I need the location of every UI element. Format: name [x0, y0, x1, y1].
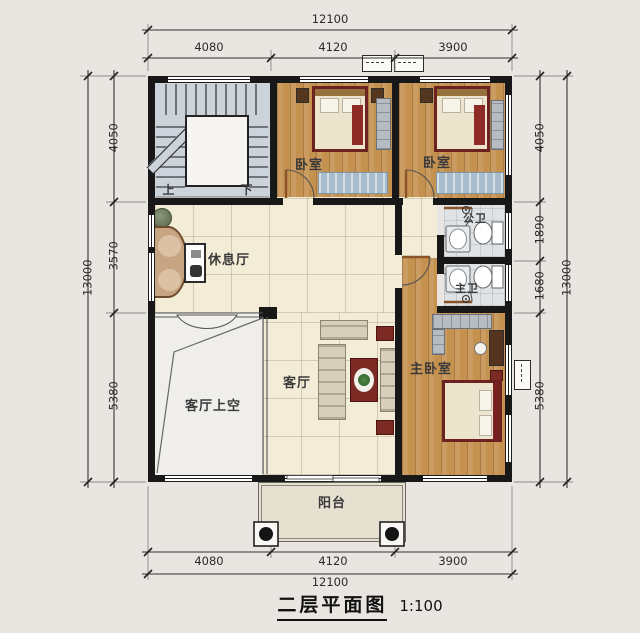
bed [442, 380, 502, 442]
headboard [315, 89, 365, 96]
wall-masterbath-bottom [437, 306, 505, 313]
dim-top-seg-1: 4080 [179, 42, 239, 54]
dim-top-total: 12100 [300, 14, 360, 26]
stair-label-down: 下 [237, 184, 257, 197]
column-void-corner [259, 307, 277, 319]
window [165, 475, 252, 482]
plant [152, 208, 172, 228]
dim-right-total: 13000 [561, 248, 573, 308]
dim-right-seg-3: 1680 [534, 256, 546, 316]
dim-bottom-seg-1: 4080 [179, 556, 239, 568]
dim-left-seg-2: 3570 [108, 226, 120, 286]
room-label-balcony: 阳台 [302, 497, 362, 511]
wall-hall-master-b [395, 288, 402, 475]
room-label-bedroom-left: 卧室 [279, 159, 339, 173]
bed [434, 86, 490, 152]
room-label-living-room: 客厅 [267, 377, 327, 391]
dim-right-seg-1: 4050 [534, 108, 546, 168]
rug [436, 172, 504, 194]
wall-stair-bedroom [270, 83, 277, 198]
ac-unit-icon [394, 55, 424, 72]
dim-left-total: 13000 [82, 248, 94, 308]
master-vestibule-floor [402, 258, 437, 306]
headboard [437, 89, 487, 96]
sofa-cushion [158, 235, 181, 257]
wall-bedrooms-hall-a [155, 198, 283, 205]
dim-top-seg-3: 3900 [423, 42, 483, 54]
pillow [442, 98, 461, 113]
nightstand [420, 88, 433, 103]
side-table [376, 420, 394, 435]
dim-right-seg-4: 5380 [534, 366, 546, 426]
sliding-door [285, 475, 381, 482]
living-void-floor [155, 313, 263, 475]
chair [474, 342, 487, 355]
wall-bathroom-left [437, 235, 444, 274]
window [423, 475, 487, 482]
dim-left-seg-3: 5380 [108, 366, 120, 426]
wall-bedrooms-hall-b [313, 198, 403, 205]
wall-bedrooms-hall-c [433, 198, 505, 205]
sofa-seats [380, 348, 396, 412]
pillow [479, 415, 492, 436]
ac-unit-icon [362, 55, 392, 72]
headboard [493, 383, 499, 439]
window [505, 415, 512, 462]
bed [312, 86, 368, 152]
desk [489, 330, 504, 366]
wardrobe [491, 100, 504, 150]
rug [318, 172, 388, 194]
plan-title: 二层平面图 [277, 590, 387, 621]
window [300, 76, 368, 83]
room-label-living-void: 客厅上空 [161, 400, 265, 414]
room-label-master-bathroom: 主卫 [437, 283, 497, 295]
dim-bottom-seg-3: 3900 [423, 556, 483, 568]
window [148, 253, 155, 301]
dim-top-seg-2: 4120 [303, 42, 363, 54]
coffee-table [350, 358, 378, 402]
ac-unit-icon [514, 360, 531, 390]
title-block: 二层平面图 1:100 [230, 590, 490, 621]
stairwell-floor [155, 83, 270, 198]
window [505, 213, 512, 249]
bed-throw [474, 105, 485, 145]
wardrobe [432, 329, 445, 355]
plan-scale: 1:100 [399, 597, 442, 615]
nightstand [296, 88, 309, 103]
side-table [376, 326, 394, 341]
wardrobe [376, 98, 391, 150]
window [168, 76, 250, 83]
window [505, 95, 512, 175]
sofa-chaise [320, 320, 368, 340]
sofa-cushion [158, 269, 181, 291]
pillow [479, 390, 492, 411]
floor-plan-canvas: 卧室 卧室 公卫 主卫 休息厅 客厅 客厅上空 主卧室 阳台 上 下 12100… [0, 0, 640, 633]
window [148, 215, 155, 247]
dim-left-seg-1: 4050 [108, 108, 120, 168]
wall-between-bedrooms [392, 83, 399, 198]
window [420, 76, 490, 83]
plant [358, 374, 370, 386]
wall-hall-master-a [395, 205, 402, 255]
wardrobe [432, 314, 492, 329]
balcony-floor [258, 482, 406, 542]
window [505, 265, 512, 301]
room-label-bedroom-right: 卧室 [407, 157, 467, 171]
room-label-master-bedroom: 主卧室 [401, 363, 461, 377]
pillow [320, 98, 339, 113]
room-label-public-bathroom: 公卫 [445, 213, 505, 225]
dim-bottom-total: 12100 [300, 577, 360, 589]
stair-label-up: 上 [159, 184, 179, 197]
room-label-lounge: 休息厅 [189, 254, 269, 268]
wall-between-bathrooms [444, 257, 505, 264]
dim-bottom-seg-2: 4120 [303, 556, 363, 568]
bed-throw [352, 105, 363, 145]
window [505, 345, 512, 395]
dim-right-seg-2: 1890 [534, 200, 546, 260]
